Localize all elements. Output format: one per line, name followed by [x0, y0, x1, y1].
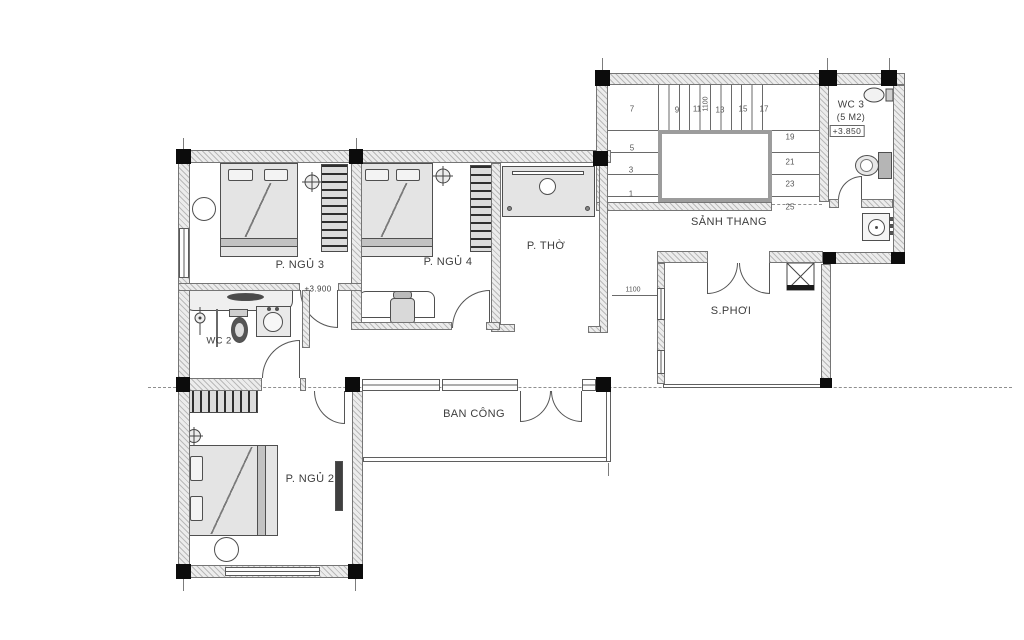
- wall-bedroom3-bottom: [338, 283, 362, 291]
- room-label-bedroom4: P. NGỦ 4: [424, 256, 473, 268]
- ceiling-fan-icon: [302, 172, 322, 197]
- stool-icon: [192, 197, 216, 221]
- wall-right-outer: [893, 85, 905, 264]
- wall-wc3-bottom: [829, 199, 839, 208]
- pillow-icon: [190, 496, 203, 521]
- wall-bedroom4-bottom: [351, 322, 452, 330]
- stair-step-number: 21: [786, 158, 795, 167]
- wall-corridor-south: [300, 378, 306, 391]
- tap-dot: [267, 307, 271, 311]
- wall-wc3-bottom: [861, 199, 893, 208]
- column: [596, 377, 611, 392]
- basin-icon: [263, 312, 283, 332]
- wall-bedroom4-bottom: [486, 322, 500, 330]
- floor-level-label: +3.900: [304, 285, 331, 294]
- wall-drying-top: [769, 251, 823, 263]
- door-arc-bedroom4: [452, 290, 490, 328]
- wall-bedroom4-worship: [491, 163, 501, 324]
- wc3-area-label: (5 M2): [837, 112, 865, 122]
- column: [819, 70, 837, 86]
- wall-drying-right: [821, 264, 831, 384]
- stair-step-number: 15: [739, 105, 748, 114]
- stair-dim-line: [710, 85, 711, 130]
- pillow-icon: [396, 169, 420, 181]
- door-leaf-wc2: [299, 340, 300, 378]
- stair-step-number: 13: [716, 106, 725, 115]
- stool-icon: [214, 537, 239, 562]
- stair-treads-right: [772, 130, 819, 202]
- toilet-seat: [235, 323, 244, 337]
- section-axis-line: [148, 387, 1012, 388]
- door-arc-balcony-left: [520, 391, 551, 422]
- wall-foot: [588, 326, 601, 333]
- stair-step-number: 25: [786, 203, 795, 212]
- door-arc-wc2: [262, 340, 300, 378]
- wall-wc2-right: [302, 290, 310, 348]
- room-label-bedroom2: P. NGỦ 2: [286, 473, 335, 485]
- window-drying-passage: [657, 288, 665, 320]
- wall-stair-bottom: [596, 202, 772, 211]
- toilet-tank: [878, 152, 892, 179]
- blanket-fold: [359, 183, 431, 237]
- room-label-worship: P. THỜ: [527, 240, 565, 252]
- blanket-fold: [205, 447, 260, 534]
- room-label-bedroom3: P. NGỦ 3: [276, 259, 325, 271]
- stair-step-number: 23: [786, 180, 795, 189]
- window-corridor-balcony: [442, 379, 518, 391]
- incense-bowl-icon: [539, 178, 556, 195]
- door-leaf-balcony-right: [581, 391, 582, 422]
- floor-plan: 7 9 11 13 15 17 19 21 23 25 5 3 1 1100 1…: [0, 0, 1024, 640]
- chair-icon: [390, 298, 415, 324]
- wall-corridor-south: [178, 378, 262, 391]
- wc3-level-label: +3.850: [830, 125, 865, 137]
- wall-worship-right: [599, 163, 608, 333]
- door-leaf-balcony-left: [520, 391, 521, 422]
- window-bedroom2-bottom: [225, 567, 320, 576]
- door-arc-bedroom2: [314, 391, 345, 424]
- stair-exit-line: [772, 204, 822, 205]
- tap-dot: [275, 307, 279, 311]
- window-drying-passage: [657, 350, 665, 374]
- toilet-tank: [229, 309, 248, 317]
- stair-step-number: 1: [629, 190, 633, 199]
- door-arc-drying-right: [739, 263, 770, 294]
- stair-step-number: 11: [693, 105, 701, 114]
- window-corridor-balcony: [362, 379, 440, 391]
- stair-step-number: 9: [675, 106, 679, 115]
- wc2-label: WC 2: [206, 336, 231, 347]
- axis-tick: [183, 578, 184, 591]
- column: [348, 564, 363, 579]
- column: [595, 70, 610, 86]
- corner-dot: [507, 206, 512, 211]
- room-label-stair-hall: SẢNH THANG: [691, 216, 767, 228]
- door-arc-balcony-right: [551, 391, 582, 422]
- pillow-icon: [365, 169, 389, 181]
- room-label-wc3: WC 3: [838, 100, 865, 111]
- altar-top-line: [512, 171, 584, 175]
- drying-parapet: [663, 384, 823, 388]
- balcony-rail-bottom: [363, 457, 611, 462]
- ceiling-fan-icon: [433, 166, 453, 191]
- stair-step-number: 7: [630, 105, 634, 114]
- stair-step-number: 19: [786, 133, 795, 142]
- pillow-icon: [228, 169, 253, 181]
- door-leaf-drying-left: [707, 263, 708, 294]
- tv-icon: [335, 461, 343, 511]
- bed-foot-band: [357, 238, 433, 247]
- pillow-icon: [190, 456, 203, 481]
- column: [176, 564, 191, 579]
- passage-dim-line: [612, 295, 657, 296]
- axis-tick: [355, 578, 356, 591]
- wall-bedroom3-4: [351, 163, 362, 330]
- bed-foot-band: [257, 445, 266, 536]
- column: [349, 149, 363, 164]
- stair-step-number: 17: [760, 105, 769, 114]
- stair-step-number: 5: [630, 144, 634, 153]
- wardrobe-icon: [183, 389, 258, 413]
- column: [823, 252, 836, 264]
- bed-foot-band: [220, 238, 298, 247]
- door-arc-wc3: [838, 176, 862, 200]
- chair-back: [393, 291, 412, 299]
- door-leaf-wc3: [861, 176, 862, 200]
- vanity-basin-icon: [227, 293, 264, 301]
- wall-stair-top: [596, 73, 905, 85]
- room-label-balcony: BAN CÔNG: [443, 408, 505, 420]
- wall-bedroom2-right: [352, 391, 363, 565]
- window-bedroom3-left: [179, 228, 189, 278]
- stair-void: [658, 130, 772, 202]
- column: [593, 151, 608, 166]
- column: [881, 70, 897, 86]
- wall-bedroom3-bottom: [178, 283, 300, 291]
- column: [176, 377, 190, 392]
- wall-drying-top: [657, 251, 708, 263]
- pillow-icon: [264, 169, 288, 181]
- window-corridor-balcony: [582, 379, 596, 391]
- column: [176, 149, 191, 164]
- stair-step-number: 3: [629, 166, 633, 175]
- blanket-fold: [222, 183, 296, 237]
- door-arc-drying-left: [707, 263, 738, 294]
- column: [891, 252, 905, 264]
- room-label-drying: S.PHƠI: [711, 305, 752, 317]
- door-leaf-bedroom2: [344, 391, 345, 424]
- wall-stair-wc3: [819, 85, 829, 202]
- wall-basin-icon: [862, 84, 894, 111]
- washer-dot: [875, 226, 878, 229]
- toilet-seat: [860, 159, 873, 172]
- wall-top-main: [178, 150, 611, 163]
- stair-width-dimension: 1100: [703, 96, 710, 111]
- column: [345, 377, 360, 392]
- door-leaf-drying-right: [769, 263, 770, 294]
- door-leaf-bedroom3: [337, 290, 338, 328]
- balcony-rail-right: [606, 391, 611, 462]
- passage-dimension: 1100: [625, 287, 640, 294]
- corner-dot: [585, 206, 590, 211]
- column: [820, 378, 832, 388]
- wall-left-outer: [178, 163, 190, 565]
- axis-tick: [608, 463, 609, 476]
- shaft-icon: [786, 262, 815, 296]
- wardrobe-icon: [321, 164, 348, 252]
